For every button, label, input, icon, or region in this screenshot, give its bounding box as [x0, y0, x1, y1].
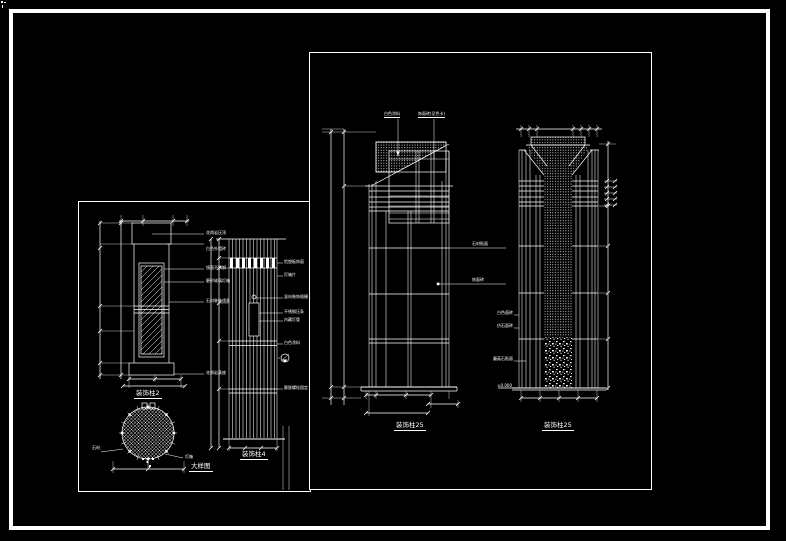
view-title-elevation: 装饰柱2: [134, 390, 162, 399]
column-elevation-left: [322, 119, 506, 416]
material-label: 镜面不锈钢: [206, 266, 226, 271]
right-sheet-linework: [310, 53, 651, 489]
plan-view: [101, 403, 186, 473]
material-label: 饰面砖: [472, 278, 484, 283]
material-label: 灯箱片: [284, 273, 296, 278]
material-label: 仿石面砖: [497, 324, 513, 329]
material-label: 白色面砖: [497, 311, 513, 316]
elevation-view: [98, 215, 204, 388]
level-label: ±0.000: [497, 384, 512, 389]
material-label: 不锈钢压条: [284, 310, 304, 315]
view-title-left-column: 装饰柱25: [394, 422, 426, 431]
corner-mark: [1, 1, 7, 9]
view-title-plan: 大样图: [189, 463, 213, 472]
material-label: 内藏灯管: [284, 318, 300, 323]
view-title-detail: 装饰柱4: [240, 451, 268, 460]
material-label: 膨胀螺栓固定: [284, 386, 308, 391]
material-label: 饰面砖(见色卡): [418, 112, 445, 118]
right-drawing-frame: 白色涂料 饰面砖(见色卡) 石材贴面 饰面砖 白色面砖 仿石面砖 蘑菇石贴面 ±…: [309, 52, 652, 490]
left-sheet-linework: [79, 202, 310, 491]
material-label: 石材: [92, 446, 100, 451]
material-label: 花岗岩基座: [206, 371, 226, 376]
material-label: 铝塑板饰面: [284, 260, 304, 265]
material-label: 蘑菇石贴面: [493, 357, 513, 362]
material-label: 花岗岩压顶: [206, 231, 226, 236]
column-elevation-right: [498, 125, 617, 402]
material-label: 灯箱: [185, 455, 193, 460]
cad-viewport: { "window": { "background": "#000000", "…: [0, 0, 786, 541]
material-label: 白色外墙砖: [206, 247, 226, 252]
material-label: 白色涂料: [284, 341, 300, 346]
left-drawing-frame: 花岗岩压顶 白色外墙砖 镜面不锈钢 磨砂玻璃灯箱 石材装饰线条 花岗岩基座 石材…: [78, 201, 311, 492]
material-label: 磨砂玻璃灯箱: [206, 279, 230, 284]
material-label: 竖向装饰格栅: [284, 295, 308, 300]
material-label: 石材装饰线条: [206, 299, 230, 304]
material-label: 石材贴面: [472, 242, 488, 247]
view-title-right-column: 装饰柱25: [542, 422, 574, 431]
material-label: 白色涂料: [384, 112, 400, 118]
